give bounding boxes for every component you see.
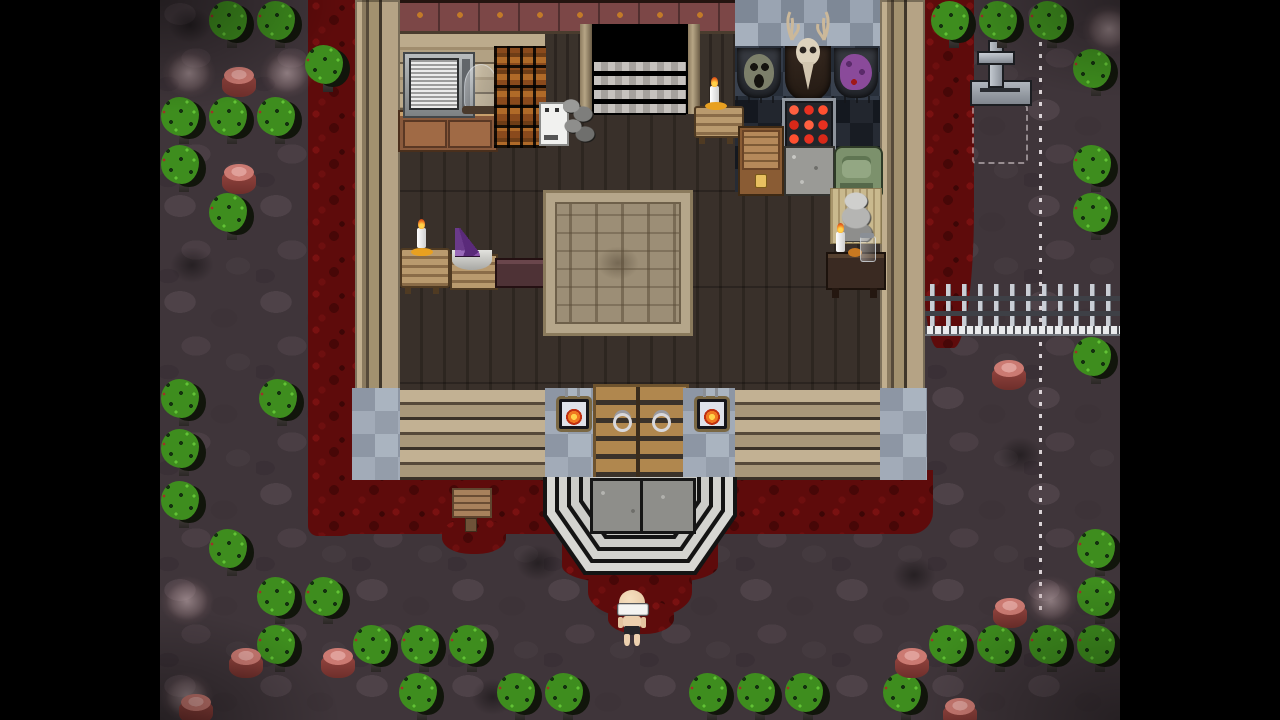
tree-sprite — [496, 672, 544, 720]
tree-sprite — [256, 576, 304, 624]
tree-sprite — [1076, 624, 1120, 672]
bench — [495, 258, 547, 288]
player-leg — [634, 634, 640, 646]
wall-lantern-right — [694, 396, 730, 432]
tree-sprite — [1072, 192, 1120, 240]
fence-rail — [925, 296, 1120, 301]
grave-plot-outline — [972, 104, 1028, 164]
stair-step — [594, 90, 686, 99]
stair-pillar — [688, 24, 700, 114]
stump-sprite — [888, 636, 936, 684]
purple-trophy[interactable] — [834, 48, 878, 98]
game-viewport[interactable] — [160, 0, 1120, 720]
tree-sprite — [400, 624, 448, 672]
crystal-bowl-table[interactable] — [450, 228, 494, 286]
tree-sprite — [1072, 48, 1120, 96]
tree-sprite — [208, 0, 256, 48]
darkpatch-sprite — [884, 550, 944, 600]
tree-sprite — [160, 480, 208, 528]
purple-crystals — [455, 228, 489, 256]
fence-base-rail — [925, 326, 1120, 334]
mask-trophy[interactable] — [737, 48, 781, 98]
iron-fence — [925, 284, 1120, 344]
stone-pier — [880, 388, 927, 480]
tree-sprite — [160, 96, 208, 144]
tree-sprite — [736, 672, 784, 720]
candle-table-top — [694, 106, 744, 138]
tree-sprite — [160, 378, 208, 426]
web-sprite — [160, 576, 214, 626]
tree-sprite — [160, 428, 208, 476]
door-handle — [613, 413, 632, 432]
tree-sprite — [1028, 624, 1076, 672]
tree-sprite — [544, 672, 592, 720]
tree-sprite — [448, 624, 496, 672]
wax-drip — [411, 248, 433, 256]
darkpatch-sprite — [508, 538, 568, 588]
wax-drip — [705, 102, 727, 110]
darkpatch-sprite — [990, 430, 1050, 480]
candle — [836, 232, 845, 252]
tree-sprite — [256, 0, 304, 48]
stone-block — [784, 146, 835, 196]
double-door[interactable] — [593, 384, 689, 486]
cabin-left-wall — [355, 0, 400, 392]
web-sprite — [1082, 4, 1120, 54]
tree-sprite — [1076, 528, 1120, 576]
tree-sprite — [304, 576, 352, 624]
stair-step — [594, 104, 686, 113]
ornate-rug — [543, 190, 693, 336]
tree-sprite — [1072, 336, 1120, 384]
tree-sprite — [930, 0, 978, 48]
tree-sprite — [208, 96, 256, 144]
deer-skull-icon — [780, 6, 836, 100]
stump-sprite — [215, 152, 263, 200]
tree-sprite — [258, 378, 306, 426]
player-arm — [641, 617, 646, 628]
front-wall-left — [400, 390, 545, 480]
tree-sprite — [978, 0, 1026, 48]
stair-step — [594, 62, 686, 71]
web-sprite — [162, 48, 216, 98]
glass-cloche[interactable] — [462, 64, 498, 116]
chest-lid — [742, 130, 780, 170]
fence-pickets — [925, 284, 1120, 326]
cabin-right-wall — [880, 0, 925, 392]
player-goggles — [617, 603, 649, 616]
wooden-sign[interactable] — [452, 488, 490, 530]
mask-face — [744, 54, 774, 90]
stump-sprite — [215, 55, 263, 103]
stump-sprite — [314, 636, 362, 684]
stump-sprite — [936, 686, 984, 720]
darkpatch-sprite — [162, 240, 222, 290]
glass-jar — [860, 236, 876, 262]
tree-sprite — [304, 44, 352, 92]
fence-rail — [925, 311, 1120, 316]
stump-sprite — [172, 682, 220, 720]
front-wall-right — [735, 390, 880, 480]
grave-cross[interactable] — [990, 42, 1002, 86]
stair-step — [594, 76, 686, 85]
tree-sprite — [1076, 576, 1120, 624]
sign-post — [465, 518, 477, 532]
player-leg — [624, 634, 630, 646]
door-handle — [652, 413, 671, 432]
porch-platform — [590, 478, 696, 534]
stump-sprite — [222, 636, 270, 684]
stone-pier — [352, 388, 400, 480]
tree-sprite — [1028, 0, 1076, 48]
tree-sprite — [398, 672, 446, 720]
tree-sprite — [208, 528, 256, 576]
game-screen — [0, 0, 1280, 720]
stump-sprite — [985, 348, 1033, 396]
purple-specimen — [840, 54, 872, 90]
wall-lantern-left — [556, 396, 592, 432]
tree-sprite — [256, 96, 304, 144]
staircase-up[interactable] — [592, 24, 688, 114]
tree-sprite — [688, 672, 736, 720]
sign-board — [452, 488, 492, 518]
wooden-chest[interactable] — [738, 126, 784, 196]
deer-skull-trophy[interactable] — [780, 6, 836, 100]
tv-static-screen — [409, 58, 459, 110]
rubble-pile — [563, 96, 595, 142]
tree-sprite — [1072, 144, 1120, 192]
tree-sprite — [160, 144, 208, 192]
writing-desk — [826, 252, 886, 290]
candle — [417, 228, 426, 248]
chest-lock — [755, 174, 767, 188]
tree-sprite — [784, 672, 832, 720]
stump-sprite — [986, 586, 1034, 634]
player-character[interactable] — [612, 590, 652, 648]
